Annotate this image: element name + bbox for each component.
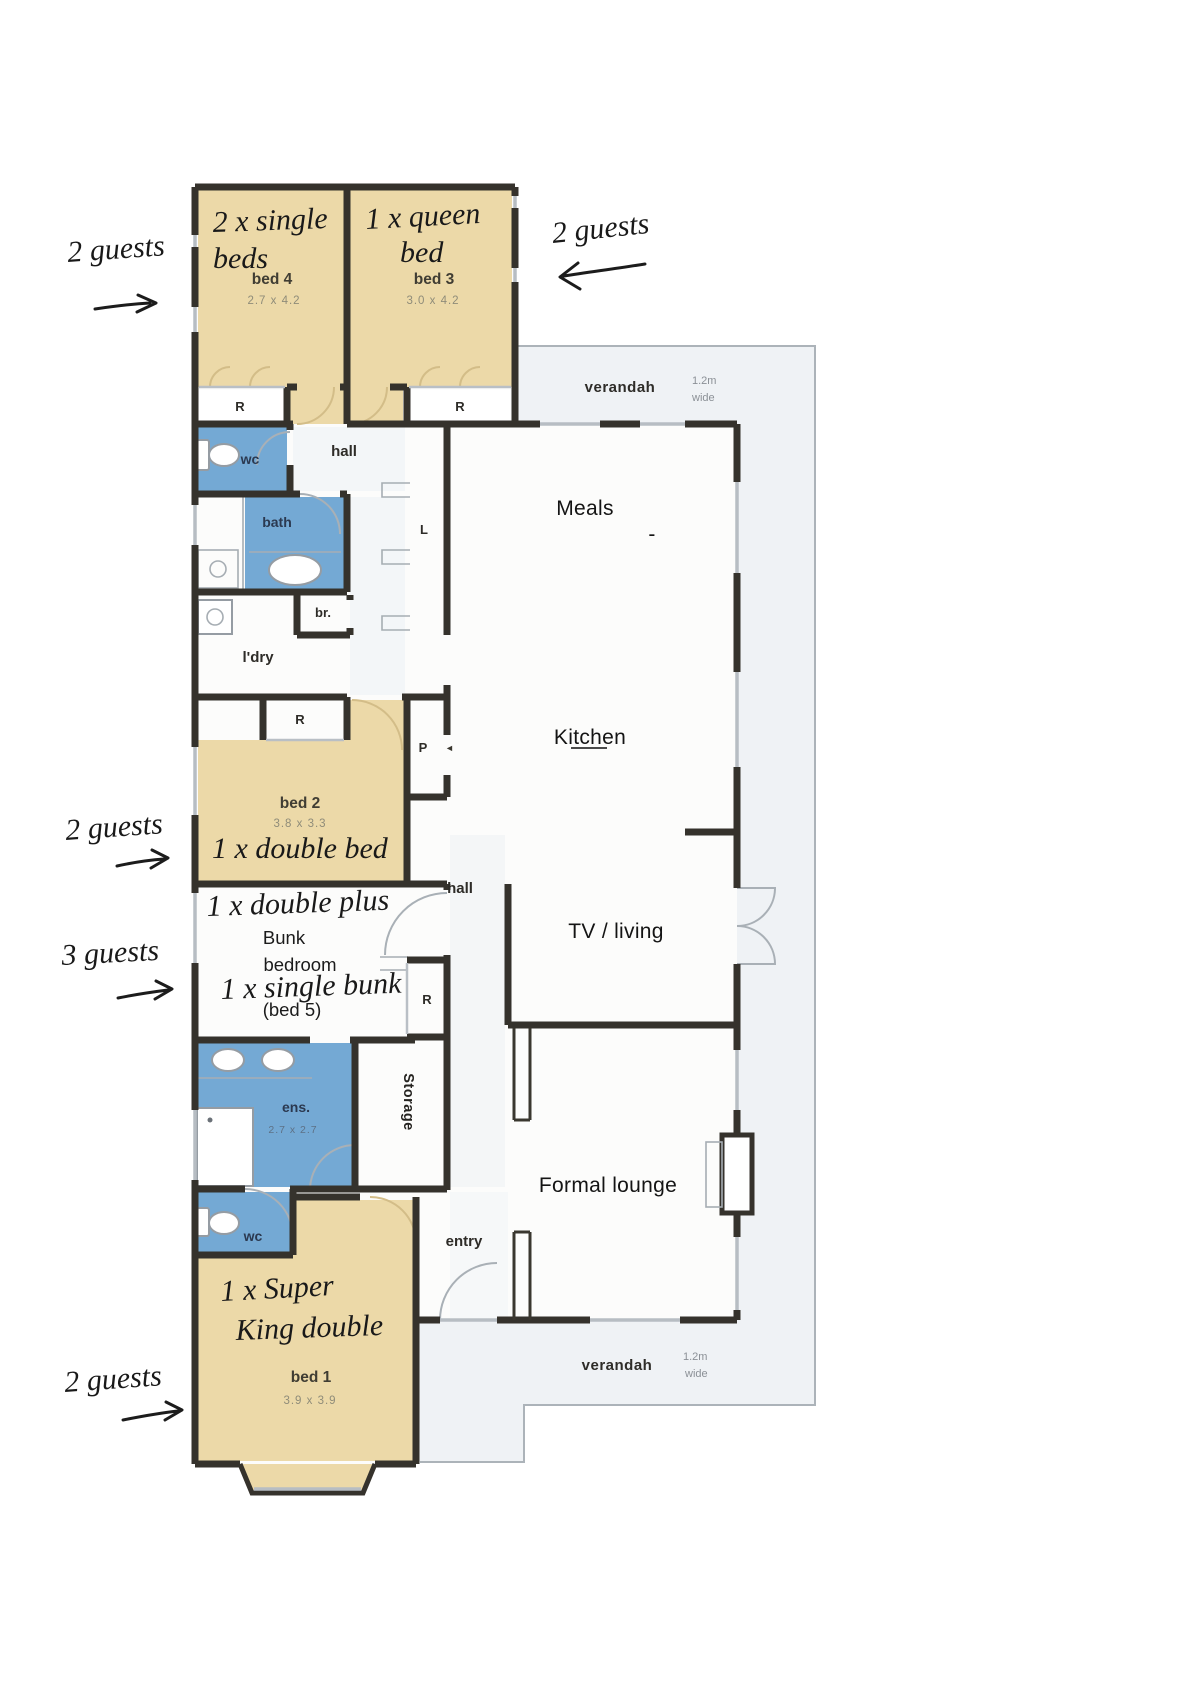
verandah-bottom-w2: wide [684, 1368, 708, 1380]
verandah-bottom-label: verandah [582, 1357, 653, 1374]
bunk-line1: Bunk [263, 927, 306, 948]
bed1-dims: 3.9 x 3.9 [283, 1395, 336, 1407]
meals-label: Meals [556, 497, 614, 520]
linen-label: L [420, 522, 428, 537]
bunk-note2: 1 x single bunk [220, 967, 403, 1006]
formal-lounge-label: Formal lounge [539, 1174, 677, 1197]
arrow-bed4 [95, 295, 156, 312]
ensuite-shower [197, 1108, 253, 1186]
toilet-bowl-top [209, 444, 239, 466]
toilet-bowl-bottom [209, 1212, 239, 1234]
verandah-top-label: verandah [585, 379, 656, 396]
bed1-label: bed 1 [291, 1369, 332, 1386]
bed3-note-line2: bed [400, 236, 444, 269]
meals-dash: - [648, 523, 655, 546]
verandah-top-w1: 1.2m [692, 375, 716, 387]
arrow-bunk [118, 981, 172, 999]
bed2-label: bed 2 [280, 795, 320, 812]
arrow-bed3 [560, 263, 645, 289]
robe-bed2: R [295, 712, 305, 727]
wc-bottom-label: wc [243, 1228, 263, 1244]
bed2-dims: 3.8 x 3.3 [273, 818, 326, 830]
bed1-bay-floor [240, 1464, 375, 1490]
guests-bed4-note: 2 guests [66, 229, 166, 269]
bed4-note-line2: beds [213, 242, 268, 275]
floorplan-page: bed 4 2.7 x 4.2 bed 3 3.0 x 4.2 R R wc h… [0, 0, 1200, 1697]
toilet-tank-top [197, 440, 209, 470]
bed3-dims: 3.0 x 4.2 [406, 295, 459, 307]
bed3-label: bed 3 [414, 271, 455, 288]
bed1-note-line1: 1 x Super [220, 1269, 335, 1308]
ensuite-basin-right [262, 1049, 294, 1071]
bath-label: bath [262, 514, 292, 530]
wc-top-label: wc [240, 451, 260, 467]
guests-bunk-note: 3 guests [60, 934, 160, 972]
arrow-bed1 [123, 1402, 182, 1420]
floorplan-scan: bed 4 2.7 x 4.2 bed 3 3.0 x 4.2 R R wc h… [0, 0, 1200, 1697]
tv-living-label: TV / living [568, 920, 664, 943]
br-label: br. [315, 605, 331, 620]
ensuite-dims: 2.7 x 2.7 [268, 1124, 317, 1136]
laundry-label: l'dry [242, 649, 274, 666]
verandah-top-w2: wide [691, 392, 715, 404]
ensuite-basin-left [212, 1049, 244, 1071]
laundry-trough [198, 600, 232, 634]
pantry-door-arrow: ◄ [445, 743, 454, 753]
entry-floor [450, 1192, 508, 1318]
bed2-note: 1 x double bed [212, 832, 389, 865]
entry-label: entry [446, 1233, 483, 1250]
bath-tub [269, 555, 321, 585]
kitchen-label: Kitchen [554, 726, 626, 749]
bed3-note-line1: 1 x queen [365, 197, 482, 236]
guests-bed1-note: 2 guests [63, 1359, 163, 1399]
robe-bunk: R [422, 992, 432, 1007]
hall-corridor-floor [350, 497, 405, 695]
bunk-note1: 1 x double plus [206, 884, 390, 923]
guests-bed3-note: 2 guests [550, 207, 650, 250]
bed4-dims: 2.7 x 4.2 [247, 295, 300, 307]
toilet-tank-bottom [197, 1208, 209, 1236]
verandah-bottom-w1: 1.2m [683, 1351, 707, 1363]
pantry-label: P [419, 740, 428, 755]
hall-top-label: hall [331, 443, 357, 460]
ensuite-shower-drain [208, 1118, 213, 1123]
arrow-bed2 [117, 850, 168, 868]
robe-bed4: R [235, 399, 245, 414]
bed1-note-line2: King double [234, 1309, 384, 1347]
guests-bed2-note: 2 guests [64, 807, 164, 847]
robe-bed3: R [455, 399, 465, 414]
fireplace [722, 1135, 752, 1213]
hall-mid-label: hall [447, 880, 473, 897]
bed4-note-line1: 2 x single [212, 202, 328, 239]
ensuite-label: ens. [282, 1099, 310, 1115]
storage-label: Storage [400, 1073, 416, 1131]
